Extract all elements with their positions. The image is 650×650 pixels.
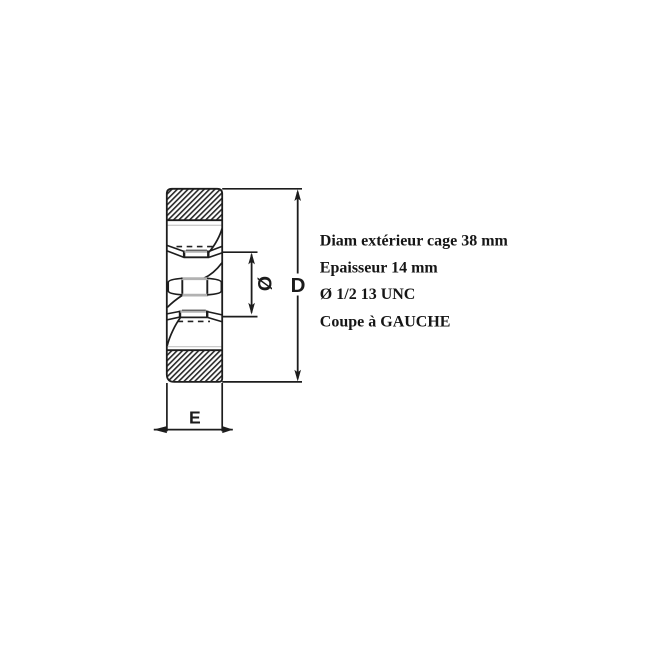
svg-text:E: E xyxy=(189,408,201,428)
svg-text:Coupe à GAUCHE: Coupe à GAUCHE xyxy=(320,313,451,330)
svg-text:Epaisseur 14 mm: Epaisseur 14 mm xyxy=(320,259,439,276)
svg-text:D: D xyxy=(291,274,306,297)
svg-text:Ø: Ø xyxy=(253,276,275,291)
svg-text:Diam extérieur cage 38 mm: Diam extérieur cage 38 mm xyxy=(320,232,509,249)
svg-text:Ø 1/2 13 UNC: Ø 1/2 13 UNC xyxy=(320,286,416,303)
